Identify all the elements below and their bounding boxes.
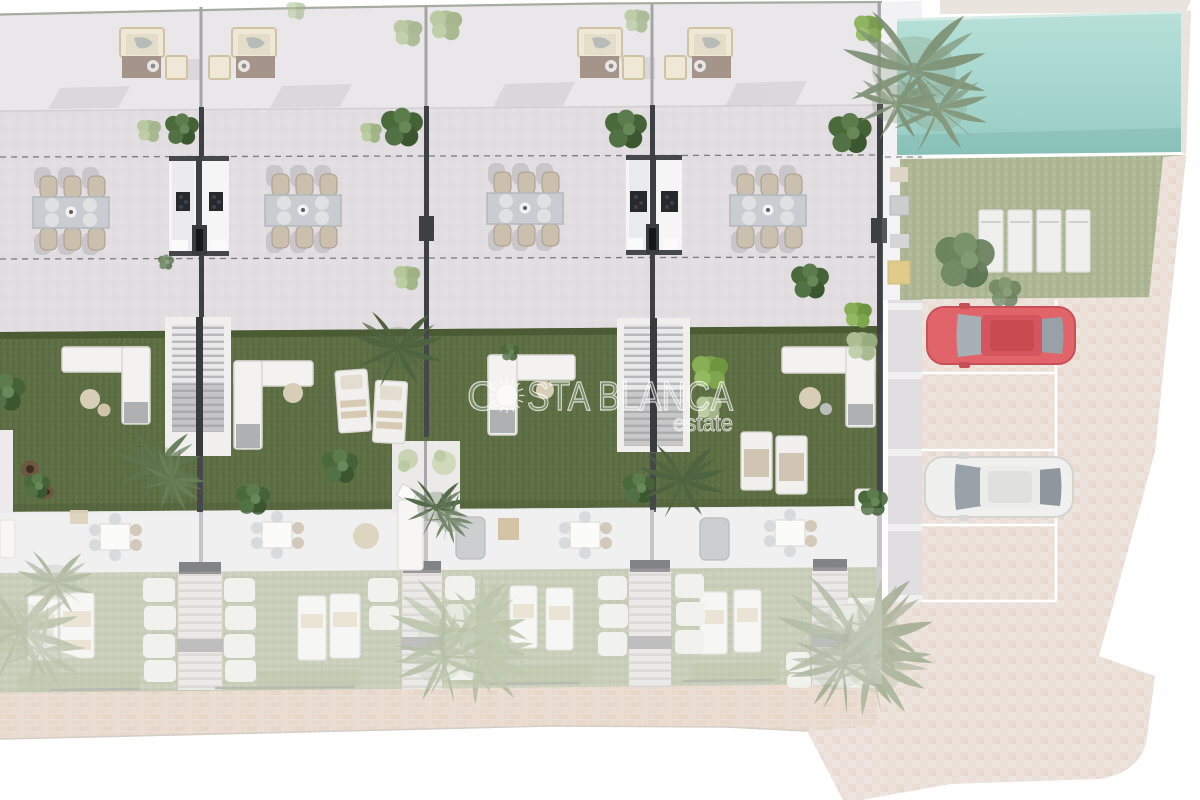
svg-text:estate: estate [673,410,733,436]
